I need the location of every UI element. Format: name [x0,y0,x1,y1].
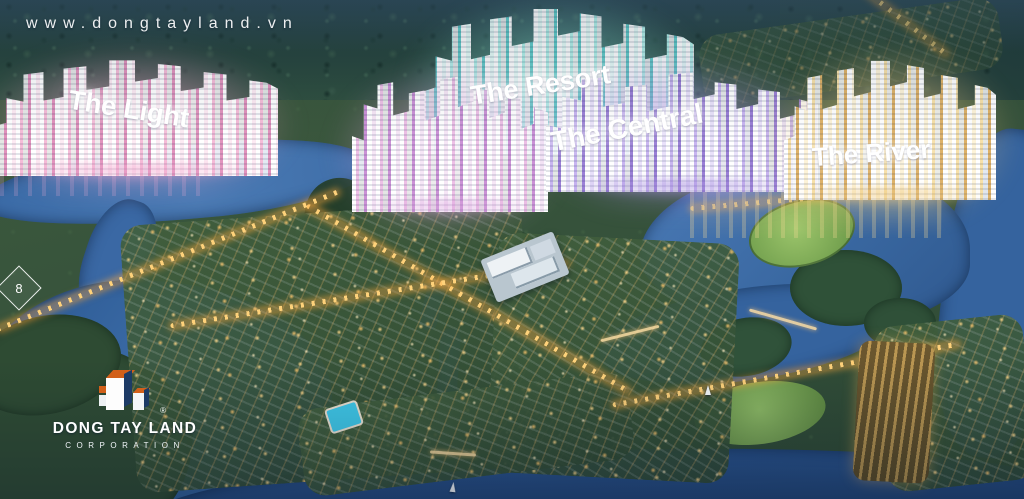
logo-block-side [144,387,149,408]
lit-palm-grove [852,340,935,484]
logo-buildings-icon [99,366,151,416]
logo-subtitle: CORPORATION [52,441,198,450]
towers-the-river [784,58,996,200]
registered-mark: ® [160,406,166,415]
logo-block-front [99,395,106,406]
sailboat [449,482,456,493]
logo-block-top [99,386,106,393]
nav-marker-value: 8 [4,273,34,303]
logo-block-front [106,378,124,410]
dong-tay-land-logo: ® DONG TAY LAND CORPORATION [52,366,198,450]
aerial-masterplan-render: www.dongtayland.vn The Light The Resort … [0,0,1024,499]
logo-title: DONG TAY LAND [52,420,198,438]
watermark-url: www.dongtayland.vn [26,15,299,33]
logo-block-front [133,393,144,410]
logo-block-side [124,370,132,407]
sailboat [705,385,711,395]
